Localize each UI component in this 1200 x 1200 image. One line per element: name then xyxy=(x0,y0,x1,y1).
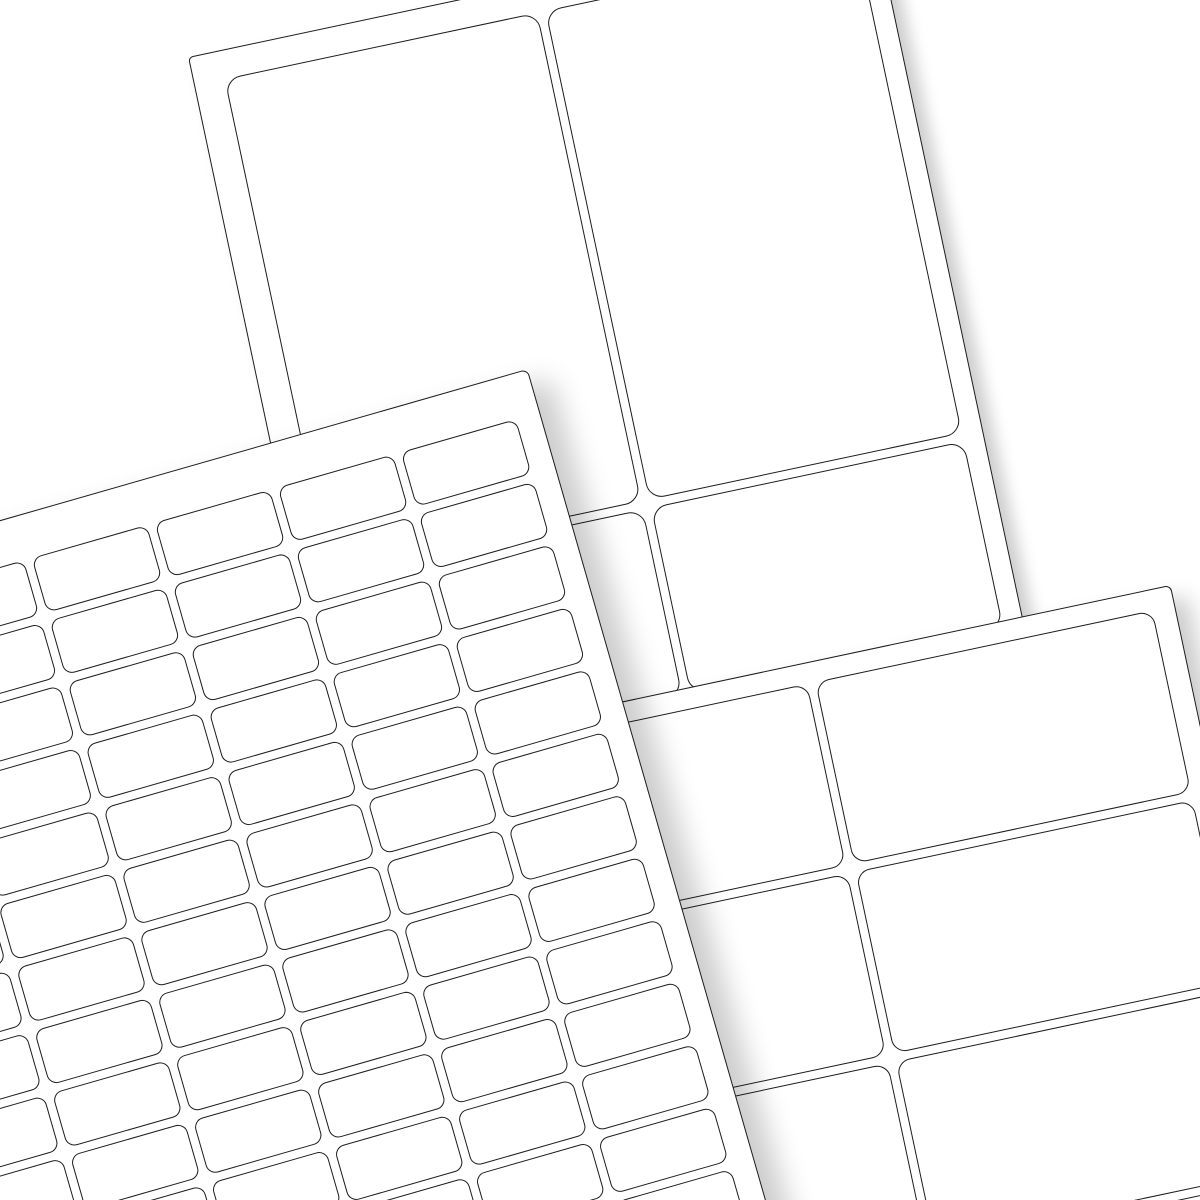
label-sheets-product-image xyxy=(0,0,1200,1200)
blank-label-sticker xyxy=(0,1158,78,1200)
